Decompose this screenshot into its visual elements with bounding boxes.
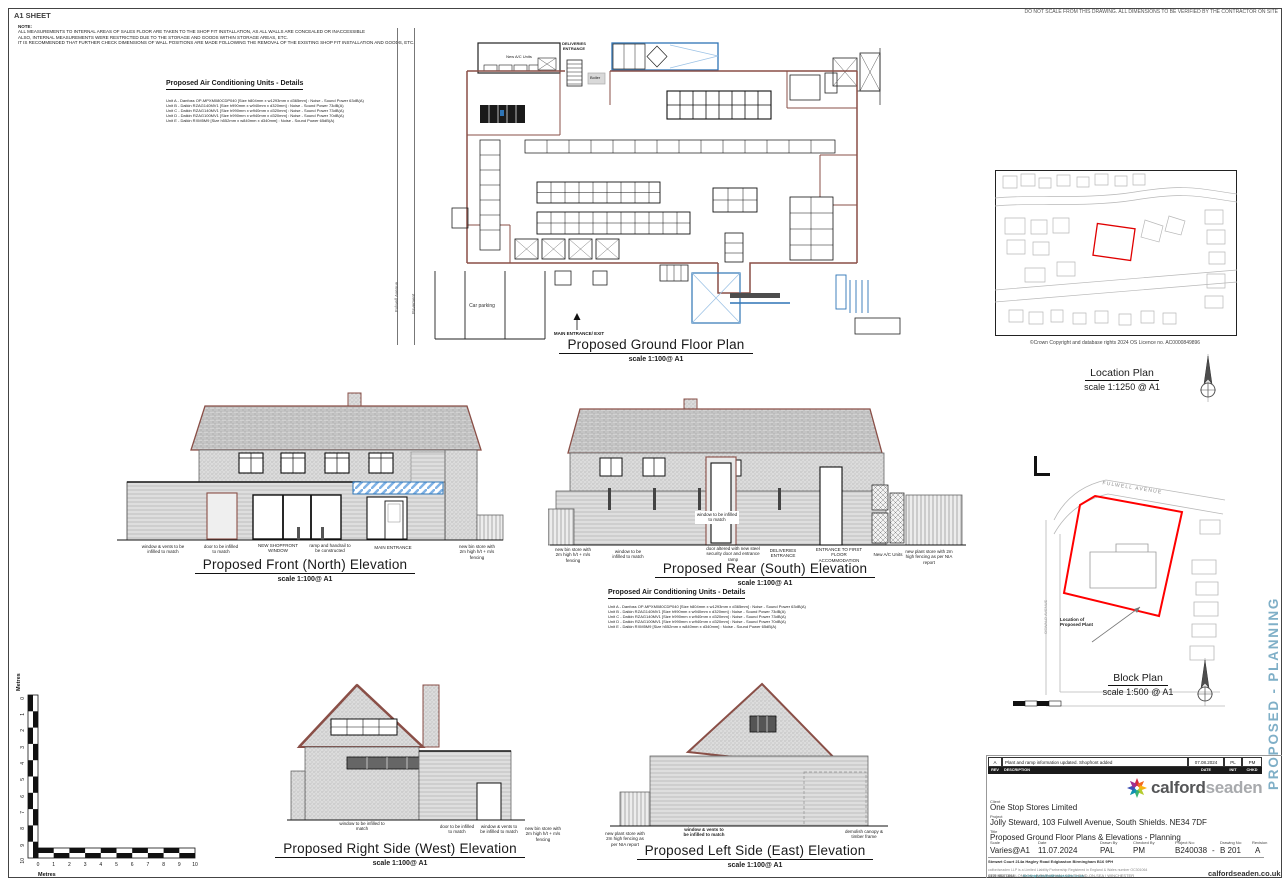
location-plan-title: Location Plan bbox=[1085, 367, 1159, 381]
west-pier bbox=[291, 771, 305, 820]
block-plan-title: Block Plan bbox=[1108, 672, 1168, 686]
east-wall-band bbox=[650, 756, 868, 826]
west-door bbox=[477, 783, 501, 820]
tick: 3 bbox=[84, 862, 87, 868]
date-value: 11.07.2024 bbox=[1038, 846, 1077, 855]
west-annotation: new bin store with 2m high h/t + m/s fen… bbox=[522, 826, 564, 842]
scale-label: Scale bbox=[990, 840, 1000, 845]
tick: 9 bbox=[178, 862, 181, 868]
tick: 6 bbox=[131, 862, 134, 868]
east-elevation-title-wrap: Proposed Left Side (East) Elevation scal… bbox=[630, 842, 880, 869]
north-arrow-icon bbox=[1193, 658, 1217, 706]
website: calfordseaden.co.uk bbox=[1208, 869, 1281, 878]
east-annotation: demolish canopy & timber frame bbox=[843, 829, 885, 840]
plan-mid-gondola bbox=[713, 188, 757, 212]
plan-canopy-top bbox=[612, 43, 718, 70]
scale-value: Varies@A1 bbox=[990, 846, 1030, 855]
label-car-parking: Car parking bbox=[460, 303, 504, 309]
front-annotation: window & vents to be infilled to match bbox=[140, 544, 186, 555]
drawing-no-label: Drawing No: bbox=[1220, 840, 1242, 845]
east-plant-store bbox=[620, 792, 650, 826]
west-annotation: window to be infilled to match bbox=[338, 821, 386, 832]
front-elevation-scale: scale 1:100@ A1 bbox=[180, 576, 430, 583]
front-annotation: door to be infilled to match bbox=[202, 544, 240, 555]
checked-by-label: Checked By bbox=[1133, 840, 1155, 845]
front-roof bbox=[191, 406, 481, 450]
offices-line: ORPINGTON | LONDON | BIRMINGHAM | SOUTHE… bbox=[988, 873, 1134, 878]
floor-plan-title-wrap: Proposed Ground Floor Plan scale 1:100@ … bbox=[525, 336, 787, 363]
front-elevation-title-wrap: Proposed Front (North) Elevation scale 1… bbox=[180, 556, 430, 583]
plan-gondola-run bbox=[537, 212, 690, 234]
scale-bar-vertical-ticks: 0 1 2 3 4 5 6 7 8 9 10 Metres bbox=[16, 673, 26, 863]
registration-line: calfordseaden LLP is a Limited Liability… bbox=[988, 868, 1147, 872]
north-arrow-icon bbox=[1196, 354, 1220, 402]
rev-header-rev: REV bbox=[988, 767, 1002, 774]
notes-block: NOTE: ALL MEASUREMENTS TO INTERNAL AREAS… bbox=[18, 24, 448, 46]
rear-annotation: window to be infilled to match bbox=[608, 549, 648, 560]
logo-text-calford: calford bbox=[1151, 778, 1206, 798]
calfordseaden-logo-icon bbox=[1126, 777, 1148, 799]
drawn-by-value: PAL bbox=[1100, 846, 1115, 855]
project-no-value: B240038 bbox=[1175, 846, 1207, 855]
west-elevation-title-wrap: Proposed Right Side (West) Elevation sca… bbox=[275, 840, 525, 867]
location-plan-map bbox=[995, 170, 1237, 336]
date-label: Date bbox=[1038, 840, 1046, 845]
label-deliveries-entrance: DELIVERIES ENTRANCE bbox=[558, 41, 590, 51]
rev-header-description: DESCRIPTION bbox=[1002, 767, 1188, 774]
tick: 5 bbox=[115, 862, 118, 868]
front-annotation: MAIN ENTRANCE bbox=[374, 545, 412, 550]
plan-tables-row bbox=[515, 239, 619, 259]
east-gable-window bbox=[750, 716, 776, 732]
tick: 2 bbox=[68, 862, 71, 868]
tick: 6 bbox=[20, 795, 26, 798]
checked-by-value: PM bbox=[1133, 846, 1145, 855]
west-annotation: door to be infilled to match bbox=[438, 824, 476, 835]
drawing-no-value: B 201 bbox=[1220, 846, 1241, 855]
rear-annotation: new plant store with 2m high fencing as … bbox=[905, 549, 953, 565]
front-bin-store bbox=[477, 515, 503, 540]
tick: 8 bbox=[162, 862, 165, 868]
west-annotation: window & vents to be infilled to match bbox=[478, 824, 520, 835]
scale-bar-unit-horizontal: Metres bbox=[38, 872, 56, 878]
tick: 7 bbox=[20, 811, 26, 814]
tick: 4 bbox=[20, 762, 26, 765]
plan-small-box bbox=[452, 208, 468, 228]
east-elevation-drawing bbox=[608, 672, 893, 830]
front-annotation: new bin store with 2m high h/t + m/s fen… bbox=[456, 544, 498, 560]
rear-elevation-drawing bbox=[548, 395, 968, 550]
rev-header-chkd: CHKD bbox=[1242, 767, 1262, 774]
metric-scale-bar: 0 1 2 3 4 5 6 7 8 9 10 Metres 0 1 2 3 4 … bbox=[8, 663, 218, 885]
front-infilled-door bbox=[207, 493, 237, 539]
plan-gondola-run bbox=[537, 182, 660, 203]
location-plan-scale: scale 1:1250 @ A1 bbox=[1062, 382, 1182, 392]
plan-stairs bbox=[567, 60, 582, 86]
disclaimer: DO NOT SCALE FROM THIS DRAWING. ALL DIME… bbox=[995, 9, 1278, 15]
block-side-street-label: OSWALD AVENUE bbox=[1043, 600, 1048, 634]
client-value: One Stop Stores Limited bbox=[990, 803, 1077, 812]
east-annotation: window & vents to be infilled to match bbox=[682, 827, 726, 838]
front-annotation: NEW SHOPFRONT WINDOW bbox=[256, 543, 300, 554]
project-value: Jolly Steward, 103 Fulwell Avenue, South… bbox=[990, 818, 1207, 827]
plan-freezer-grid bbox=[667, 91, 771, 119]
plan-key-box bbox=[855, 318, 900, 334]
west-elevation-drawing bbox=[285, 675, 530, 825]
front-annotation: ramp and handrail to be constructed bbox=[308, 543, 352, 554]
floor-plan-scale: scale 1:100@ A1 bbox=[525, 356, 787, 363]
rear-first-floor-door bbox=[820, 467, 842, 545]
project-no-label: Project No: bbox=[1175, 840, 1195, 845]
rear-annotation: window to be infilled to match bbox=[695, 511, 739, 524]
sheet-size-label: A1 SHEET bbox=[14, 11, 51, 20]
block-building-outline bbox=[1090, 544, 1156, 588]
floor-plan-title: Proposed Ground Floor Plan bbox=[559, 337, 752, 354]
west-roof bbox=[299, 685, 423, 747]
rev-init: PL bbox=[1224, 757, 1242, 767]
scale-bar-vertical bbox=[28, 695, 38, 858]
east-elevation-title: Proposed Left Side (East) Elevation bbox=[637, 843, 874, 860]
field-separator: - bbox=[1212, 846, 1215, 855]
rev-header-date: DATE bbox=[1188, 767, 1224, 774]
plan-porches bbox=[555, 265, 688, 285]
tick: 10 bbox=[20, 858, 26, 864]
tick: 9 bbox=[20, 844, 26, 847]
revision-value: A bbox=[1255, 846, 1260, 855]
street-label-fulwell: Fulwell Avenue bbox=[394, 282, 399, 312]
tick: 0 bbox=[37, 862, 40, 868]
scale-bar-horizontal bbox=[38, 848, 195, 858]
ac-details-heading: Proposed Air Conditioning Units - Detail… bbox=[166, 80, 303, 90]
rev-date: 07.08.2024 bbox=[1188, 757, 1224, 767]
block-corner-mark bbox=[1034, 456, 1054, 480]
front-elevation-title: Proposed Front (North) Elevation bbox=[195, 557, 416, 574]
titleblock-divider bbox=[988, 857, 1264, 858]
location-plan-title-wrap: Location Plan scale 1:1250 @ A1 bbox=[1062, 363, 1182, 392]
rear-ac-units bbox=[872, 485, 904, 543]
tick: 3 bbox=[20, 746, 26, 749]
rev-header-init: INIT bbox=[1224, 767, 1242, 774]
west-elevation-title: Proposed Right Side (West) Elevation bbox=[275, 841, 525, 858]
main-entrance-arrow bbox=[574, 313, 581, 330]
plan-rooms-right bbox=[790, 48, 880, 105]
label-new-ac-units: New A/C Units bbox=[498, 54, 540, 59]
west-elevation-scale: scale 1:100@ A1 bbox=[275, 860, 525, 867]
block-plan-scale: scale 1:500 @ A1 bbox=[1078, 687, 1198, 697]
label-boiler: Boiler bbox=[590, 75, 600, 80]
rev-chkd: PM bbox=[1242, 757, 1262, 767]
rear-plant-fence bbox=[906, 495, 962, 545]
tick: 1 bbox=[52, 862, 55, 868]
plan-left-fixtures bbox=[480, 105, 525, 250]
drawn-by-label: Drawn By bbox=[1100, 840, 1117, 845]
street-label-pavement: Pavement bbox=[411, 294, 416, 314]
rev-value: A bbox=[988, 757, 1002, 767]
plan-wall-bays bbox=[525, 140, 835, 153]
tick: 0 bbox=[20, 697, 26, 700]
block-plant-label: Location of Proposed Plant bbox=[1060, 617, 1100, 628]
ground-floor-plan-drawing bbox=[430, 25, 965, 340]
east-elevation-scale: scale 1:100@ A1 bbox=[630, 862, 880, 869]
block-mini-scalebar bbox=[1012, 699, 1064, 709]
os-copyright: ©Crown Copyright and database rights 202… bbox=[985, 340, 1245, 346]
logo-text-seaden: seaden bbox=[1206, 778, 1263, 798]
note-line: IT IS RECOMMENDED THAT FURTHER CHECK DIM… bbox=[18, 40, 448, 45]
tick: 2 bbox=[20, 729, 26, 732]
rear-annotation: New A/C Units bbox=[872, 552, 904, 557]
drawing-sheet: A1 SHEET NOTE: ALL MEASUREMENTS TO INTER… bbox=[0, 0, 1288, 888]
front-sign-band bbox=[353, 482, 443, 494]
tick: 1 bbox=[20, 713, 26, 716]
west-window-band bbox=[347, 757, 425, 769]
rev-description: Plant and ramp information updated. Shop… bbox=[1002, 757, 1188, 767]
block-plan-title-wrap: Block Plan scale 1:500 @ A1 bbox=[1078, 668, 1198, 697]
revision-table: A Plant and ramp information updated. Sh… bbox=[988, 757, 1262, 774]
scale-bar-horizontal-ticks: 0 1 2 3 4 5 6 7 8 9 10 Metres bbox=[37, 862, 198, 878]
tick: 4 bbox=[99, 862, 102, 868]
calfordseaden-logo: calfordseaden bbox=[1126, 777, 1262, 799]
front-elevation-drawing bbox=[115, 385, 505, 545]
block-site-outline bbox=[1064, 496, 1182, 616]
tick: 10 bbox=[192, 862, 198, 868]
tick: 8 bbox=[20, 827, 26, 830]
tick: 7 bbox=[147, 862, 150, 868]
rear-bin-store bbox=[548, 509, 574, 545]
rear-annotation: new bin store with 2m high h/t + m/s fen… bbox=[552, 547, 594, 563]
rear-roof bbox=[568, 409, 882, 453]
ac-unit-line: Unit E - Daikin RXM5M9 [Size h552mm x w8… bbox=[608, 624, 948, 629]
revision-label: Revision bbox=[1252, 840, 1267, 845]
rear-annotation: DELIVERIES ENTRANCE bbox=[766, 548, 800, 559]
tick: 5 bbox=[20, 778, 26, 781]
ac-details-block-2: Proposed Air Conditioning Units - Detail… bbox=[608, 581, 948, 629]
rear-elevation-title: Proposed Rear (South) Elevation bbox=[655, 561, 875, 578]
scale-bar-unit-vertical: Metres bbox=[16, 673, 22, 691]
ac-details-heading: Proposed Air Conditioning Units - Detail… bbox=[608, 589, 745, 599]
